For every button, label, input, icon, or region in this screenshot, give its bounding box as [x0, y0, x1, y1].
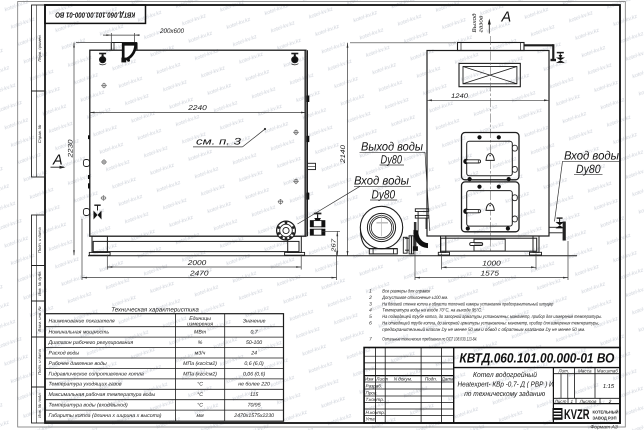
- svg-text:КВТД.060.101.00.000-01 ВО: КВТД.060.101.00.000-01 ВО: [459, 350, 614, 365]
- svg-text:Подп. и дата: Подп. и дата: [37, 227, 42, 253]
- svg-text:Лист: Лист: [375, 376, 388, 381]
- svg-text:Температура воды на входе 70°: Температура воды на входе 70°С, на выход…: [382, 308, 482, 314]
- svg-text:70/95: 70/95: [248, 403, 261, 409]
- svg-text:Dy80: Dy80: [381, 152, 403, 166]
- svg-text:А: А: [501, 10, 512, 26]
- svg-text:не более 220: не более 220: [238, 382, 270, 388]
- svg-text:2: 2: [608, 399, 612, 404]
- svg-text:1: 1: [369, 289, 372, 295]
- svg-text:Dy80: Dy80: [372, 187, 396, 201]
- svg-text:4: 4: [369, 308, 372, 314]
- svg-text:Лист: Лист: [554, 399, 567, 404]
- svg-text:Пров.: Пров.: [366, 390, 378, 395]
- svg-text:Гидравлическое сопротивление к: Гидравлическое сопротивление котла: [49, 371, 144, 377]
- svg-text:Лит.: Лит.: [557, 368, 569, 373]
- svg-text:Heatexpert- КВр -0,7- Д ( РВР: Heatexpert- КВр -0,7- Д ( РВР ) И: [458, 380, 555, 389]
- svg-text:50-100: 50-100: [246, 340, 262, 346]
- svg-text:МПа (кгс/см2): МПа (кгс/см2): [183, 361, 217, 367]
- svg-text:KVZR: KVZR: [564, 406, 590, 422]
- svg-text:Формат А3: Формат А3: [590, 424, 618, 430]
- svg-text:°С: °С: [197, 382, 203, 388]
- svg-text:Габариты котла (длинна х ширин: Габариты котла (длинна х ширина х высота…: [49, 413, 162, 419]
- svg-text:Дата: Дата: [440, 376, 454, 381]
- svg-text:Справ. №: Справ. №: [37, 124, 42, 143]
- svg-text:На отводящей трубе котла, до з: На отводящей трубе котла, до запорной ар…: [382, 321, 599, 327]
- svg-text:200х600: 200х600: [159, 28, 184, 35]
- svg-text:2000: 2000: [187, 260, 207, 267]
- svg-text:N докум.: N докум.: [394, 376, 413, 381]
- svg-text:1240: 1240: [451, 93, 468, 100]
- svg-text:Расход воды: Расход воды: [49, 350, 80, 356]
- svg-text:2: 2: [368, 295, 372, 301]
- svg-text:Изм: Изм: [365, 376, 374, 381]
- svg-text:Котел водогрейный: Котел водогрейный: [473, 370, 537, 379]
- svg-text:Выход: Выход: [472, 13, 478, 32]
- svg-text:м3/ч: м3/ч: [195, 350, 206, 356]
- svg-text:2140: 2140: [340, 145, 347, 165]
- svg-text:6: 6: [369, 321, 372, 327]
- svg-text:Наименование показателя: Наименование показателя: [49, 318, 115, 324]
- svg-text:Значение: Значение: [243, 318, 266, 324]
- svg-text:Т.контр.: Т.контр.: [366, 397, 385, 402]
- svg-text:Все размеры для справок: Все размеры для справок: [382, 289, 431, 295]
- svg-text:3: 3: [369, 301, 372, 307]
- svg-text:Н.контр.: Н.контр.: [366, 410, 385, 415]
- svg-text:1: 1: [571, 399, 574, 404]
- svg-text:2470: 2470: [189, 271, 209, 278]
- svg-text:Температура уходящих газов: Температура уходящих газов: [49, 382, 122, 388]
- svg-text:2240: 2240: [187, 105, 207, 112]
- svg-text:Допустимое отклонение ±100 мм: Допустимое отклонение ±100 мм.: [381, 295, 448, 301]
- svg-text:%: %: [198, 340, 203, 346]
- svg-text:267: 267: [330, 238, 337, 253]
- svg-text:Перв. примен.: Перв. примен.: [37, 34, 42, 61]
- svg-text:На боковой стенке котла в обла: На боковой стенке котла в области топочн…: [382, 301, 553, 307]
- svg-text:7: 7: [369, 336, 372, 342]
- svg-text:Листов: Листов: [579, 399, 597, 404]
- svg-text:2230: 2230: [68, 139, 75, 159]
- svg-text:Выход воды: Выход воды: [361, 139, 423, 153]
- svg-text:мм: мм: [197, 413, 205, 419]
- svg-text:Подп. и дата: Подп. и дата: [37, 348, 42, 374]
- svg-text:1575: 1575: [481, 271, 500, 278]
- svg-text:по техническому заданию: по техническому заданию: [464, 389, 546, 398]
- svg-text:Диапазон рабочего регулировани: Диапазон рабочего регулирования: [48, 340, 134, 346]
- svg-text:24: 24: [250, 350, 257, 356]
- svg-text:Инв. № подл.: Инв. № подл.: [37, 392, 42, 417]
- svg-text:измерения: измерения: [187, 321, 213, 327]
- svg-text:Подп.: Подп.: [425, 376, 437, 381]
- svg-text:115: 115: [250, 392, 258, 398]
- svg-text:Dy80: Dy80: [576, 162, 601, 176]
- svg-text:°С: °С: [197, 392, 203, 398]
- svg-text:Вход воды: Вход воды: [564, 149, 619, 163]
- svg-text:газов: газов: [478, 15, 484, 32]
- svg-text:КОТЕЛЬНЫЙ: КОТЕЛЬНЫЙ: [593, 410, 619, 415]
- svg-text:Рабочее давление воды: Рабочее давление воды: [49, 361, 107, 367]
- svg-text:предохранительный клапан Dу н: предохранительный клапан Dу не менее 50 …: [382, 327, 585, 333]
- svg-text:ЗАВОД РЭП: ЗАВОД РЭП: [593, 415, 617, 420]
- svg-text:см. п. 3: см. п. 3: [196, 137, 242, 148]
- svg-text:0,6 (6,0): 0,6 (6,0): [244, 361, 264, 367]
- svg-text:1000: 1000: [482, 260, 501, 267]
- svg-text:МПа (кгс/см2): МПа (кгс/см2): [183, 371, 217, 377]
- svg-text:Инв. № дубл.: Инв. № дубл.: [37, 271, 42, 296]
- svg-text:Температура воды (вход/выход): Температура воды (вход/выход): [49, 403, 128, 409]
- svg-text:Масштаб: Масштаб: [597, 368, 618, 373]
- svg-text:1:15: 1:15: [603, 384, 615, 390]
- svg-text:КВТД.060.101.00.000-01 ВО: КВТД.060.101.00.000-01 ВО: [55, 10, 135, 19]
- svg-text:°С: °С: [197, 403, 203, 409]
- svg-text:Номинальная мощность: Номинальная мощность: [49, 330, 110, 336]
- svg-text:5: 5: [369, 314, 372, 320]
- svg-text:Остальные технические требован: Остальные технические требования по ОСТ …: [382, 336, 477, 342]
- svg-text:Утв.: Утв.: [366, 417, 376, 422]
- svg-text:На подводящей трубе котла, д: На подводящей трубе котла, до запорной а…: [382, 314, 602, 320]
- svg-text:Взам. инв. №: Взам. инв. №: [37, 306, 42, 332]
- svg-text:Разраб.: Разраб.: [366, 383, 383, 388]
- svg-text:0,7: 0,7: [250, 330, 258, 336]
- svg-text:Вход воды: Вход воды: [354, 174, 409, 188]
- svg-text:Максимальная рабочая температу: Максимальная рабочая температура воды: [49, 392, 156, 398]
- svg-text:Техническая характеристика: Техническая характеристика: [111, 307, 199, 314]
- svg-text:МВт: МВт: [194, 330, 207, 336]
- svg-text:0,06 (0,6): 0,06 (0,6): [243, 371, 265, 377]
- svg-text:2470х1575х2230: 2470х1575х2230: [233, 413, 274, 419]
- svg-text:Масса: Масса: [578, 368, 592, 373]
